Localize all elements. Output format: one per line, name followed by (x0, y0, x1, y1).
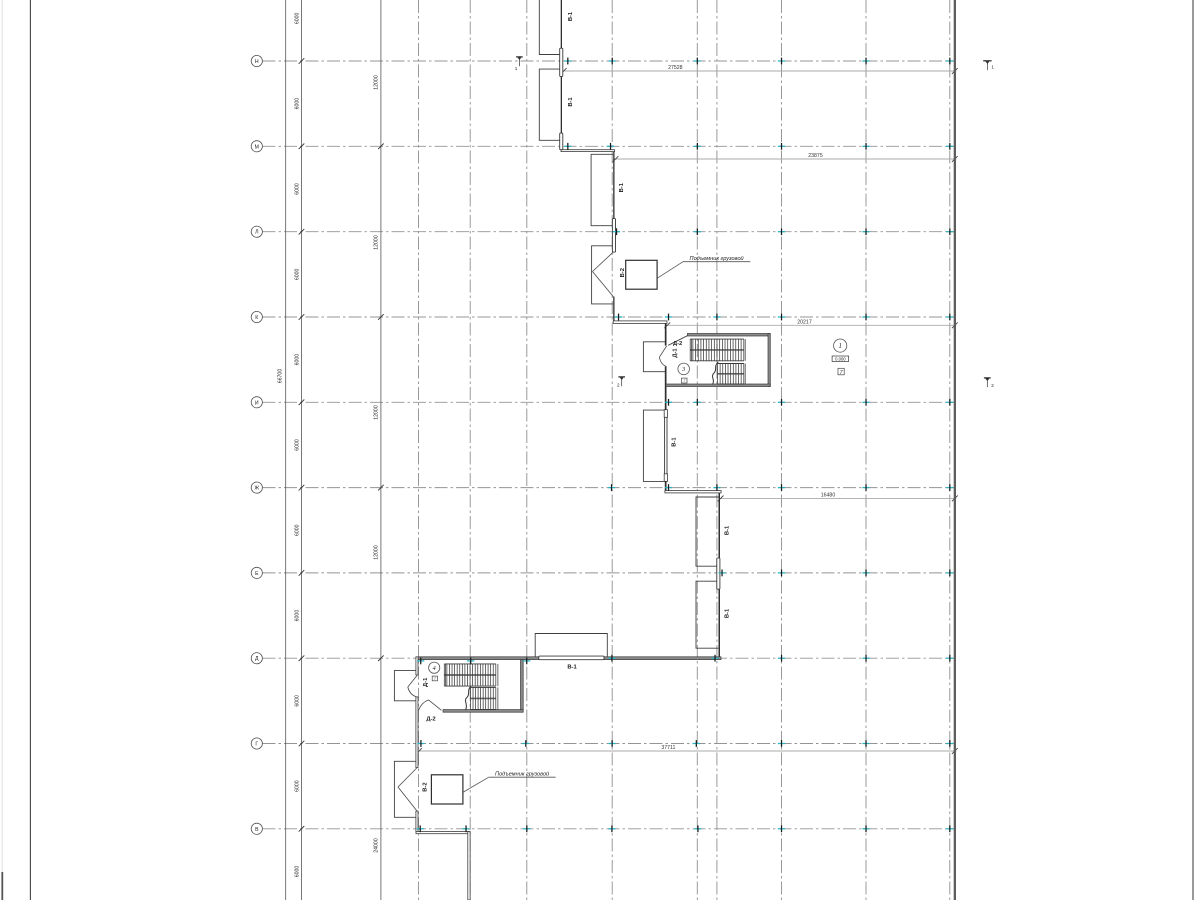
svg-text:6000: 6000 (294, 610, 300, 622)
svg-text:В-2: В-2 (422, 782, 428, 791)
svg-text:12000: 12000 (374, 545, 380, 560)
svg-text:37711: 37711 (661, 745, 675, 751)
svg-text:6000: 6000 (294, 183, 300, 195)
svg-text:2: 2 (991, 383, 994, 388)
svg-text:М: М (255, 144, 259, 150)
svg-text:24000: 24000 (374, 838, 380, 853)
svg-text:Д-2: Д-2 (673, 341, 682, 347)
svg-text:6000: 6000 (294, 268, 300, 280)
svg-text:6000: 6000 (294, 866, 300, 878)
svg-text:Подъемник грузовой: Подъемник грузовой (495, 771, 549, 778)
svg-text:27528: 27528 (668, 65, 683, 71)
svg-text:В-1: В-1 (725, 608, 731, 618)
svg-text:В: В (255, 827, 259, 833)
svg-text:В-1: В-1 (568, 11, 574, 21)
svg-text:В-1: В-1 (619, 182, 625, 192)
svg-text:В-1: В-1 (567, 665, 577, 671)
svg-text:6000: 6000 (294, 12, 300, 24)
svg-text:Н: Н (255, 59, 259, 65)
svg-text:В-1: В-1 (568, 97, 574, 107)
svg-text:6000: 6000 (294, 780, 300, 792)
svg-text:Ж: Ж (254, 486, 259, 492)
svg-text:Д: Д (255, 656, 259, 662)
svg-text:4: 4 (433, 665, 436, 672)
svg-text:6000: 6000 (294, 98, 300, 110)
svg-text:3: 3 (681, 366, 685, 373)
svg-text:16480: 16480 (821, 493, 836, 499)
svg-text:Л: Л (255, 230, 258, 236)
svg-text:66700: 66700 (278, 369, 284, 384)
svg-text:12000: 12000 (374, 75, 380, 90)
svg-text:6000: 6000 (294, 354, 300, 366)
svg-text:Е: Е (255, 571, 259, 577)
svg-text:К: К (255, 315, 258, 321)
svg-text:2: 2 (617, 383, 620, 388)
svg-text:Д-1: Д-1 (423, 677, 429, 687)
svg-text:1: 1 (838, 343, 841, 350)
svg-text:1: 1 (515, 66, 518, 71)
svg-text:Г: Г (255, 742, 258, 748)
svg-text:6000: 6000 (294, 524, 300, 536)
svg-text:6000: 6000 (294, 439, 300, 451)
svg-text:12000: 12000 (374, 405, 380, 420)
svg-text:Подъемник грузовой: Подъемник грузовой (690, 255, 744, 262)
svg-text:В-1: В-1 (671, 437, 677, 447)
svg-text:В-1: В-1 (725, 525, 731, 535)
svg-text:И: И (255, 400, 259, 406)
svg-text:1: 1 (991, 65, 994, 70)
svg-text:0.000: 0.000 (835, 356, 846, 361)
svg-text:12000: 12000 (374, 235, 380, 250)
svg-text:Д-2: Д-2 (426, 716, 435, 722)
svg-text:Д-1: Д-1 (673, 348, 679, 358)
svg-text:23875: 23875 (808, 153, 823, 159)
svg-text:6000: 6000 (294, 695, 300, 707)
svg-text:20217: 20217 (797, 320, 812, 326)
